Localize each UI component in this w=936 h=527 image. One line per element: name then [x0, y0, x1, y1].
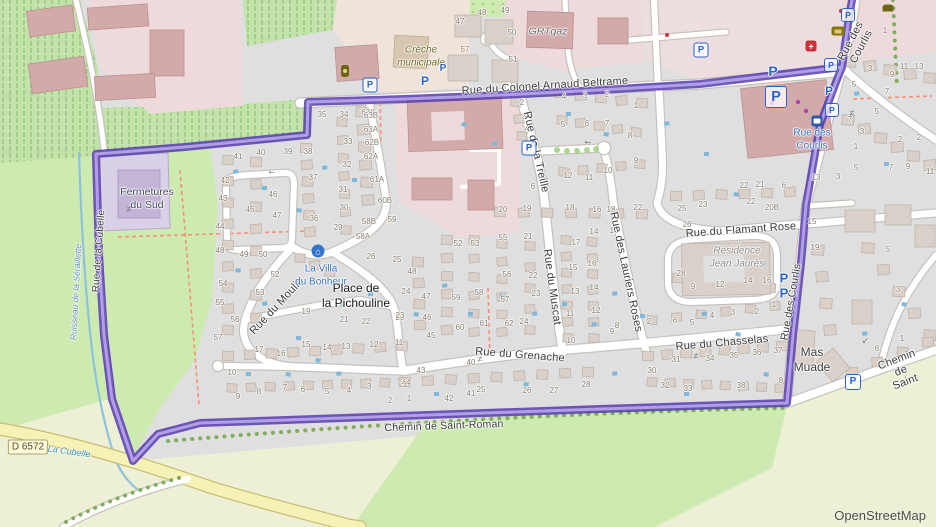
- house-number: 55: [499, 234, 508, 242]
- house-number: 8: [615, 322, 619, 330]
- house-number: 36: [753, 349, 762, 357]
- house-number: 1: [883, 27, 887, 35]
- house-number: 6: [301, 386, 305, 394]
- house-number: 40: [467, 359, 476, 367]
- house-number: 26: [367, 253, 376, 261]
- house-number: 6: [782, 182, 786, 190]
- attribution-link[interactable]: OpenStreetMap: [834, 508, 926, 523]
- house-number: 34: [706, 355, 715, 363]
- poi-label: Résidence Jean Jaurès: [710, 246, 764, 271]
- house-number: 12: [592, 307, 601, 315]
- house-number: 3: [868, 65, 872, 73]
- house-number: 19: [302, 308, 311, 316]
- house-number: 25: [477, 386, 486, 394]
- parking-icon: P: [845, 374, 861, 390]
- house-number: 48: [478, 9, 487, 17]
- house-number: 57: [214, 334, 223, 342]
- house-number: 2: [898, 136, 902, 144]
- house-number: 62A: [364, 153, 378, 161]
- house-number: 21: [524, 233, 533, 241]
- house-number: 16: [277, 350, 286, 358]
- house-number: 46: [423, 314, 432, 322]
- house-number: 9: [236, 393, 240, 401]
- house-number: 53: [256, 289, 265, 297]
- house-number: 15: [569, 264, 578, 272]
- house-number: 50: [508, 29, 517, 37]
- house-number: 1: [403, 381, 407, 389]
- poi-label: GRTgaz: [529, 25, 568, 38]
- house-number: 10: [604, 167, 613, 175]
- house-number: 37: [774, 347, 783, 355]
- house-number: 24: [520, 318, 529, 326]
- house-number: 3: [367, 383, 371, 391]
- house-number: 56: [503, 271, 512, 279]
- house-number: 11: [900, 63, 908, 71]
- poi-label: Rue des Courlis: [793, 128, 830, 153]
- house-number: 58: [475, 289, 484, 297]
- house-number: 5: [325, 388, 329, 396]
- house-number: 16: [593, 206, 602, 214]
- house-number: 16: [588, 260, 597, 268]
- bus-stop-icon: [812, 116, 823, 127]
- house-number: 9: [906, 163, 910, 171]
- house-number: 37: [309, 174, 318, 182]
- house-number: 41: [234, 153, 243, 161]
- house-number: 47: [273, 212, 282, 220]
- house-number: 51: [509, 56, 518, 64]
- house-number: 23: [396, 312, 405, 320]
- house-number: 53: [471, 240, 480, 248]
- house-number: 18: [566, 204, 575, 212]
- house-number: 38: [737, 382, 746, 390]
- house-number: 10: [228, 369, 237, 377]
- house-number: 43: [219, 195, 228, 203]
- house-number: 15: [302, 341, 311, 349]
- parking-icon: P: [522, 141, 537, 156]
- house-number: 62: [505, 320, 514, 328]
- house-number: 49: [501, 7, 510, 15]
- house-number: 59: [388, 216, 397, 224]
- house-number: 7: [889, 164, 893, 172]
- house-number: 3: [836, 173, 840, 181]
- house-number: 11: [395, 339, 403, 347]
- house-number: 13: [915, 63, 924, 71]
- poi-label: Ruisseau de la Séraillette: [68, 244, 84, 341]
- house-number: 2: [647, 318, 651, 326]
- house-number: 17: [255, 346, 264, 354]
- house-number: 30: [340, 204, 349, 212]
- house-number: 25: [678, 205, 687, 213]
- oneway-arrow-icon: →: [583, 138, 593, 149]
- house-number: 6: [875, 345, 879, 353]
- house-number: 28: [582, 381, 591, 389]
- house-number: 55: [216, 299, 225, 307]
- house-number: 19: [811, 244, 820, 252]
- house-number: 61: [480, 320, 489, 328]
- house-number: 60B: [378, 197, 392, 205]
- house-number: 56: [231, 316, 240, 324]
- pharmacy-icon: +: [806, 41, 817, 52]
- house-number: 25: [393, 256, 402, 264]
- house-number: 50: [259, 251, 268, 259]
- poi-label: Mas Muade: [794, 345, 831, 375]
- house-number: 41: [467, 390, 476, 398]
- house-number: 52: [454, 240, 463, 248]
- house-number: 5: [852, 81, 856, 89]
- house-number: 59: [452, 294, 461, 302]
- house-number: 24: [402, 288, 411, 296]
- house-number: 54: [219, 280, 228, 288]
- house-number: 2: [388, 397, 392, 405]
- house-number: 17: [572, 239, 581, 247]
- house-number: 63B: [364, 112, 378, 120]
- house-number: 26: [523, 387, 532, 395]
- house-number: 38: [304, 148, 313, 156]
- house-number: 22: [634, 204, 643, 212]
- house-number: 5: [886, 246, 890, 254]
- house-number: 5: [690, 319, 694, 327]
- poi-label: La Cubelle: [47, 443, 91, 460]
- house-number: 9: [634, 157, 638, 165]
- house-number: 14: [590, 284, 599, 292]
- house-number: 6: [673, 317, 677, 325]
- house-number: 28: [677, 270, 686, 278]
- house-number: 8: [628, 132, 632, 140]
- house-number: 12: [370, 341, 379, 349]
- parking-icon: P: [780, 272, 789, 285]
- house-number: 60: [456, 324, 465, 332]
- gate-icon: ≠: [127, 204, 132, 214]
- house-number: 31: [672, 356, 681, 364]
- house-number: 47: [422, 293, 431, 301]
- house-number: 7: [885, 88, 889, 96]
- house-number: 29: [334, 224, 343, 232]
- street-label: Chemin de Saint: [876, 347, 925, 395]
- parking-icon: P: [363, 78, 378, 93]
- amenity-icon: [341, 65, 349, 77]
- street-label: Rue du Muscat: [541, 248, 564, 326]
- house-number: 35: [318, 111, 327, 119]
- house-number: 21: [340, 316, 349, 324]
- house-number: 2: [917, 134, 921, 142]
- gate-icon: ≠: [850, 108, 855, 118]
- house-number: 31: [339, 186, 348, 194]
- house-number: 3: [731, 309, 735, 317]
- house-number: 39: [284, 148, 293, 156]
- house-number: 58B: [362, 218, 376, 226]
- house-number: 27: [550, 387, 559, 395]
- house-number: 52: [271, 271, 280, 279]
- house-number: 5: [875, 108, 879, 116]
- house-number: 1: [900, 335, 904, 343]
- house-number: 47: [456, 18, 465, 26]
- house-number: 11: [566, 310, 574, 318]
- house-number: 44: [216, 223, 225, 231]
- street-label: Rue de la Cubelle: [91, 209, 108, 292]
- lodging-icon: ⌂: [312, 245, 325, 258]
- street-label: Rue du Colonel Arnaud Beltrame: [461, 75, 628, 97]
- gate-icon: ≠: [478, 354, 483, 364]
- house-number: 36: [310, 215, 319, 223]
- house-number: 42: [445, 395, 454, 403]
- house-number: 32: [661, 382, 670, 390]
- house-number: 57: [461, 46, 470, 54]
- house-number: 3: [583, 92, 587, 100]
- house-number: 20B: [765, 204, 779, 212]
- house-number: 21: [756, 181, 765, 189]
- house-number: 22: [747, 198, 756, 206]
- gate-icon: ≠: [694, 351, 699, 361]
- parking-icon: P: [421, 75, 429, 87]
- house-number: 33: [684, 385, 693, 393]
- house-number: 23: [532, 290, 541, 298]
- house-number: 8: [779, 377, 783, 385]
- house-number: 7: [283, 384, 287, 392]
- house-number: 19: [523, 205, 532, 213]
- house-number: 32: [343, 161, 352, 169]
- house-number: 2: [605, 91, 609, 99]
- house-number: 14: [744, 277, 753, 285]
- street-label: Rue des Courlis: [827, 3, 886, 85]
- house-number: 14: [590, 228, 599, 236]
- parking-icon: P: [825, 103, 839, 117]
- house-number: 4: [347, 387, 351, 395]
- house-number: 1: [407, 395, 411, 403]
- road-ref-shield: D 6572: [8, 440, 48, 455]
- atm-icon: [832, 27, 845, 36]
- parking-icon: P: [694, 43, 709, 58]
- house-number: 1: [634, 102, 638, 110]
- house-number: 11: [926, 168, 934, 176]
- house-number: 34: [340, 111, 349, 119]
- house-number: 3: [896, 286, 900, 294]
- parking-icon: P: [768, 64, 777, 78]
- parking-icon: P: [825, 85, 833, 97]
- parking-icon: P: [841, 8, 855, 22]
- house-number: 2: [755, 308, 759, 316]
- house-number: 11: [585, 174, 593, 182]
- house-number: 6: [531, 183, 535, 191]
- house-number: 7: [605, 120, 609, 128]
- house-number: 8: [257, 388, 261, 396]
- house-number: 9: [610, 328, 614, 336]
- house-number: 49: [240, 251, 249, 259]
- parking-icon: P: [824, 58, 838, 72]
- poi-label: Crèche municipale: [397, 45, 445, 70]
- house-number: 57: [501, 296, 510, 304]
- house-number: 22: [740, 182, 749, 190]
- oneway-arrow-icon: →: [859, 334, 874, 349]
- house-number: 13: [812, 174, 821, 182]
- house-number: 4: [562, 93, 566, 101]
- house-number: 1: [854, 143, 858, 151]
- house-number: 4: [710, 312, 714, 320]
- oneway-arrow-icon: →: [267, 168, 277, 179]
- house-number: 14: [323, 344, 332, 352]
- house-number: 15: [808, 218, 817, 226]
- house-number: 9: [890, 71, 894, 79]
- house-number: 48: [216, 247, 225, 255]
- house-number: 6: [585, 120, 589, 128]
- house-number: 45: [427, 332, 436, 340]
- parking-icon: P: [780, 287, 789, 300]
- house-number: 62B: [365, 139, 379, 147]
- house-number: 13: [571, 288, 580, 296]
- house-number: 12: [564, 172, 573, 180]
- house-number: 23: [699, 201, 708, 209]
- house-number: 63A: [364, 126, 378, 134]
- street-label: Rue du Grenache: [475, 345, 566, 364]
- house-number: 46: [269, 191, 278, 199]
- house-number: 5: [561, 121, 565, 129]
- house-number: 20: [499, 206, 508, 214]
- house-number: 22: [529, 272, 538, 280]
- street-label: Rue des Lauriers Roses: [607, 211, 644, 333]
- house-number: 30: [648, 367, 657, 375]
- house-number: 33: [344, 138, 353, 146]
- house-number: 45: [246, 206, 255, 214]
- house-number: 43: [417, 367, 426, 375]
- house-number: 1: [772, 301, 776, 309]
- parking-icon: P: [440, 64, 447, 74]
- house-number: 35: [730, 352, 739, 360]
- house-number: 13: [342, 343, 351, 351]
- house-number: 16: [763, 277, 772, 285]
- house-number: 12: [716, 281, 725, 289]
- street-label: Rue du Flamant Rose: [685, 220, 796, 240]
- house-number: 10: [567, 337, 576, 345]
- house-number: 9: [691, 283, 695, 291]
- poi-label: Place de la Pichouline: [322, 281, 390, 311]
- house-number: 61A: [370, 176, 384, 184]
- house-number: 3: [860, 128, 864, 136]
- street-label: Chemin de Saint-Roman: [384, 418, 504, 434]
- house-number: 2: [520, 99, 524, 107]
- parking-icon: P: [765, 86, 787, 108]
- house-number: 40: [257, 149, 266, 157]
- car-icon: [883, 5, 894, 12]
- house-number: 42: [221, 177, 230, 185]
- house-number: 48: [408, 268, 417, 276]
- map-label-layer: 4748495057516383534131113957573122133579…: [0, 0, 936, 527]
- house-number: 22: [362, 318, 371, 326]
- house-number: 5: [854, 164, 858, 172]
- house-number: 58A: [356, 233, 370, 241]
- map-canvas[interactable]: 4748495057516383534131113957573122133579…: [0, 0, 936, 527]
